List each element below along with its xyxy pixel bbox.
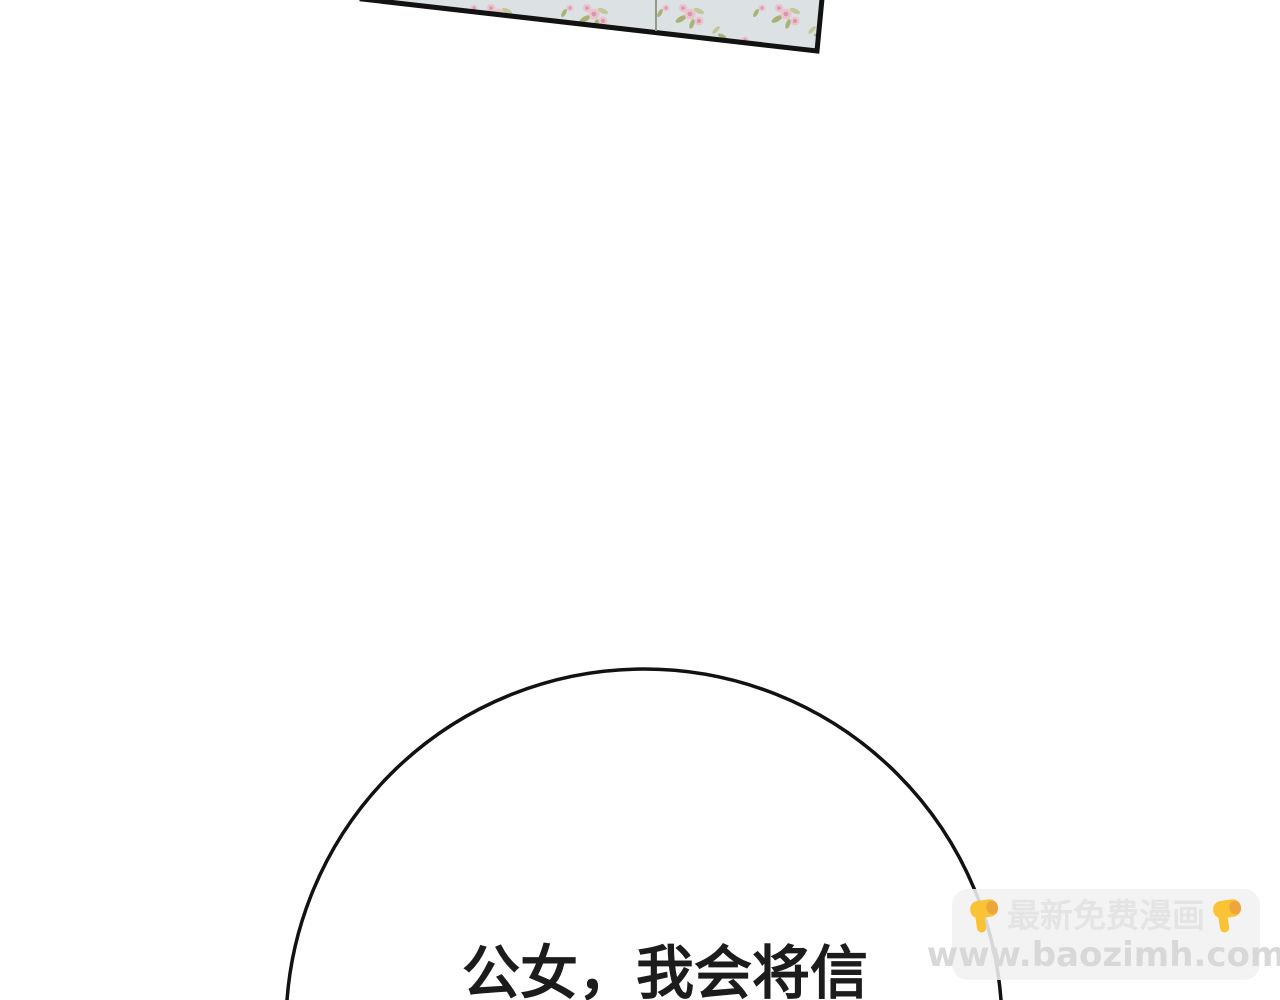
speech-bubble	[0, 0, 1280, 1000]
watermark-title: 最新免费漫画	[1007, 899, 1205, 932]
watermark-line1: 最新免费漫画	[966, 897, 1246, 934]
dialogue-text: 公女，我会将信	[462, 944, 868, 1000]
watermark: 最新免费漫画 www.baozimh.com	[952, 889, 1260, 980]
watermark-url: www.baozimh.com	[927, 938, 1280, 972]
pointing-down-hand-icon	[966, 897, 1003, 934]
pointing-down-hand-icon	[1209, 897, 1246, 934]
comic-page: 公女，我会将信 最新免费漫画 www.baozimh.com	[0, 0, 1280, 1000]
